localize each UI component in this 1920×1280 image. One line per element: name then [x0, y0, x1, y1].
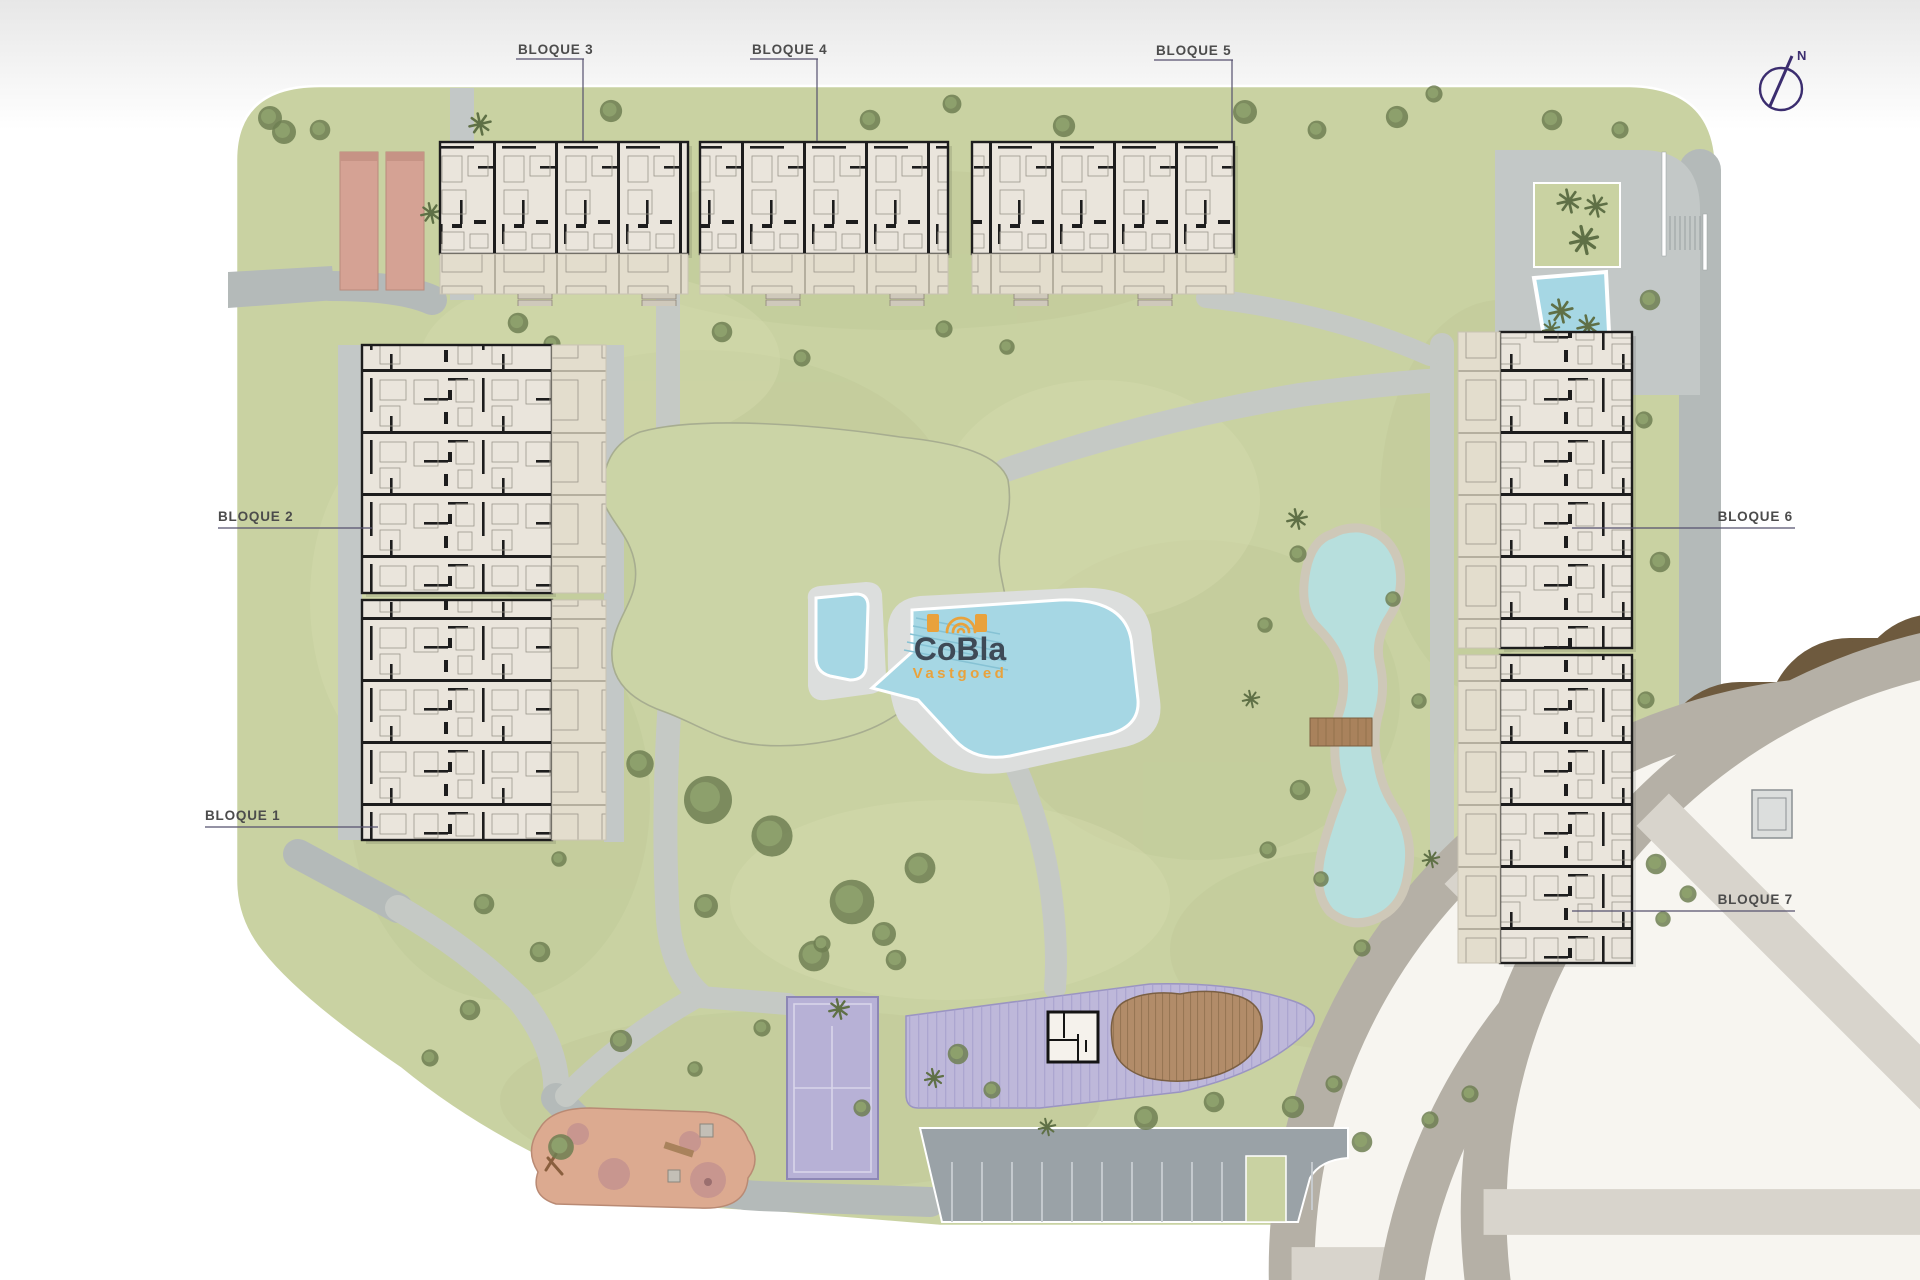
- club-building: [1048, 1012, 1098, 1062]
- parking-green-island: [1246, 1156, 1286, 1222]
- site-plan-page: BLOQUE 3 BLOQUE 4 BLOQUE 5 BLOQUE 2 BLOQ…: [0, 0, 1920, 1280]
- building-bloque-4: [700, 142, 952, 306]
- pergola-1-edge: [340, 152, 378, 161]
- balconies-bloque-5: [972, 294, 1234, 306]
- kids-pool: [816, 594, 868, 680]
- parking-lot: [920, 1128, 1348, 1222]
- balconies-bloque-4: [700, 294, 948, 306]
- pergola-1: [340, 152, 378, 290]
- playground-tower-2: [668, 1170, 680, 1182]
- label-bloque-3-text: BLOQUE 3: [518, 42, 593, 57]
- playground-tower: [700, 1124, 713, 1137]
- watermark-brand: CoBla: [914, 631, 1007, 667]
- label-bloque-1-text: BLOQUE 1: [205, 808, 280, 823]
- building-bloque-5: [972, 142, 1238, 306]
- site-plan-canvas: BLOQUE 3 BLOQUE 4 BLOQUE 5 BLOQUE 2 BLOQ…: [0, 0, 1920, 1280]
- building-bloque-3: [440, 142, 692, 306]
- path-west-blocks: [338, 345, 362, 840]
- path-east-blocks: [604, 345, 624, 842]
- watermark-subtitle: Vastgoed: [913, 665, 1008, 682]
- building-bloque-2: [362, 345, 606, 597]
- building-bloque-6: [1458, 332, 1636, 652]
- building-bloque-7: [1458, 655, 1636, 967]
- building-bloque-1: [362, 600, 606, 844]
- plaza-planter: [1534, 183, 1620, 267]
- padel-court: [787, 997, 878, 1179]
- label-bloque-4-text: BLOQUE 4: [752, 42, 827, 57]
- balconies-bloque-3: [440, 294, 688, 306]
- pergola-2: [386, 152, 424, 290]
- label-bloque-7-text: BLOQUE 7: [1718, 892, 1793, 907]
- label-bloque-6-text: BLOQUE 6: [1718, 509, 1793, 524]
- label-bloque-5-text: BLOQUE 5: [1156, 43, 1231, 58]
- pond-bridge: [1310, 718, 1372, 746]
- label-bloque-2-text: BLOQUE 2: [218, 509, 293, 524]
- pergola-2-edge: [386, 152, 424, 161]
- compass-north-label: N: [1797, 48, 1806, 63]
